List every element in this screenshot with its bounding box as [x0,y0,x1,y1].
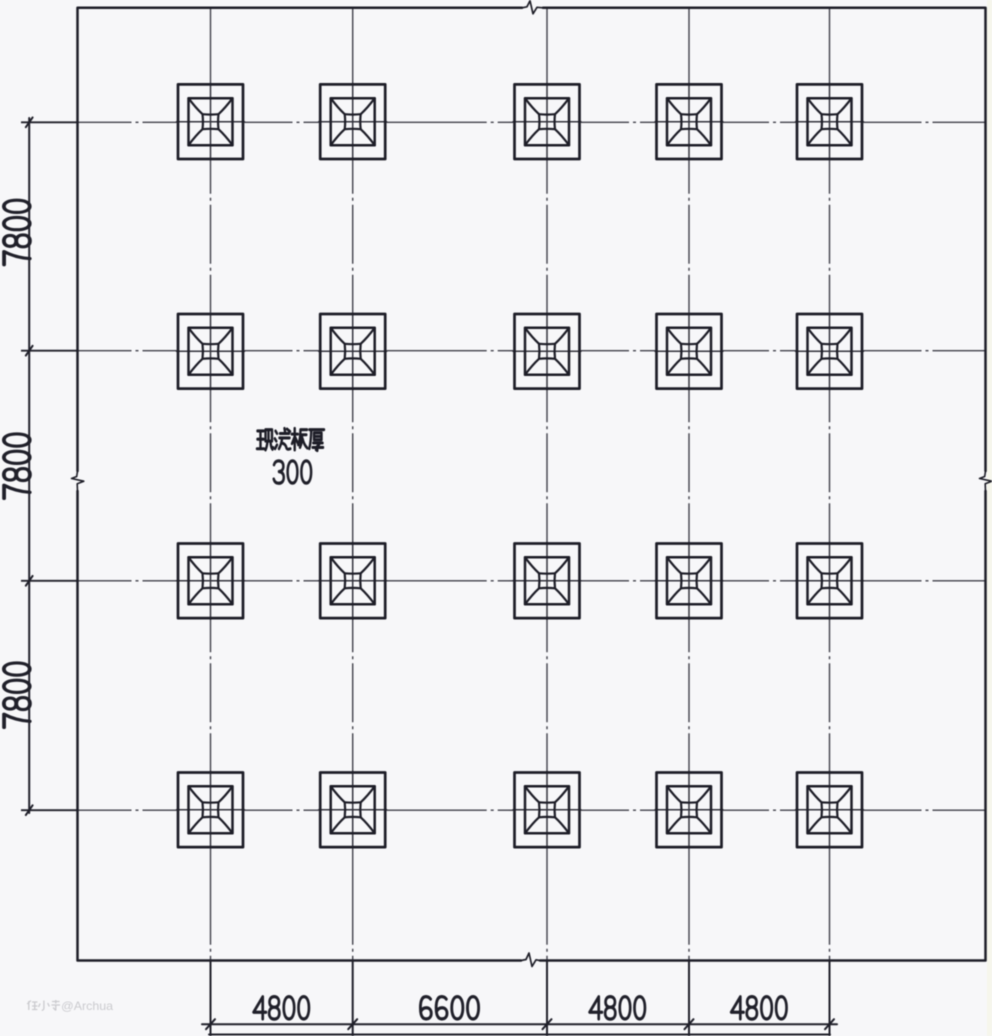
svg-text:@Archua: @Archua [61,999,113,1012]
